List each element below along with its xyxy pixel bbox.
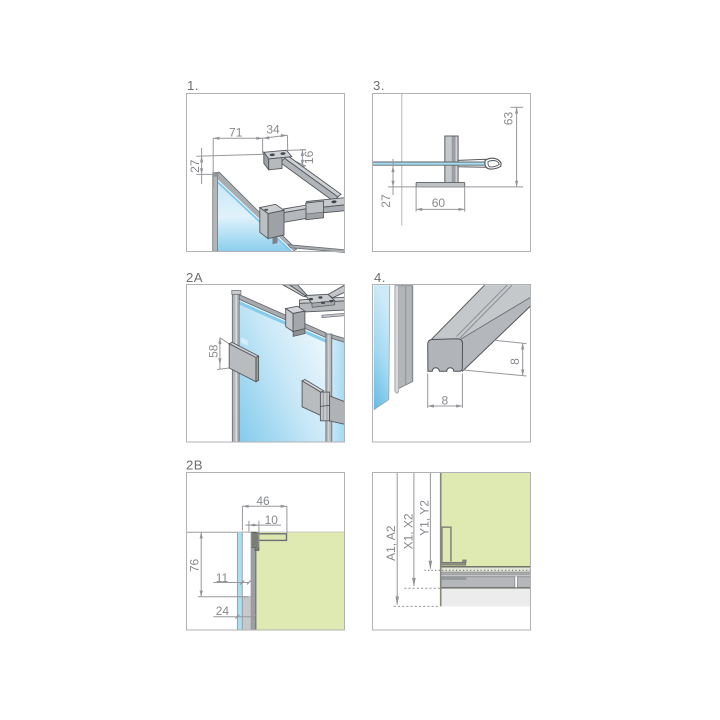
svg-text:3.: 3. (373, 78, 385, 93)
svg-text:46: 46 (256, 494, 270, 508)
svg-text:34: 34 (266, 122, 280, 136)
svg-text:X1, X2: X1, X2 (401, 513, 415, 549)
svg-text:16: 16 (302, 150, 316, 164)
svg-text:8: 8 (508, 358, 522, 365)
svg-text:4.: 4. (374, 270, 386, 285)
svg-text:27: 27 (188, 159, 202, 173)
svg-text:10: 10 (265, 513, 279, 527)
svg-text:58: 58 (206, 344, 220, 358)
svg-text:Y1, Y2: Y1, Y2 (417, 500, 431, 536)
svg-text:27: 27 (379, 194, 393, 208)
svg-text:2A: 2A (186, 270, 203, 285)
svg-text:24: 24 (216, 604, 230, 618)
svg-text:71: 71 (229, 126, 243, 140)
svg-text:76: 76 (188, 559, 202, 573)
svg-text:2B: 2B (186, 458, 203, 473)
svg-text:8: 8 (441, 394, 448, 408)
svg-text:60: 60 (432, 196, 446, 210)
svg-text:63: 63 (502, 112, 516, 126)
svg-text:A1, A2: A1, A2 (384, 525, 398, 561)
svg-text:1.: 1. (187, 78, 199, 93)
